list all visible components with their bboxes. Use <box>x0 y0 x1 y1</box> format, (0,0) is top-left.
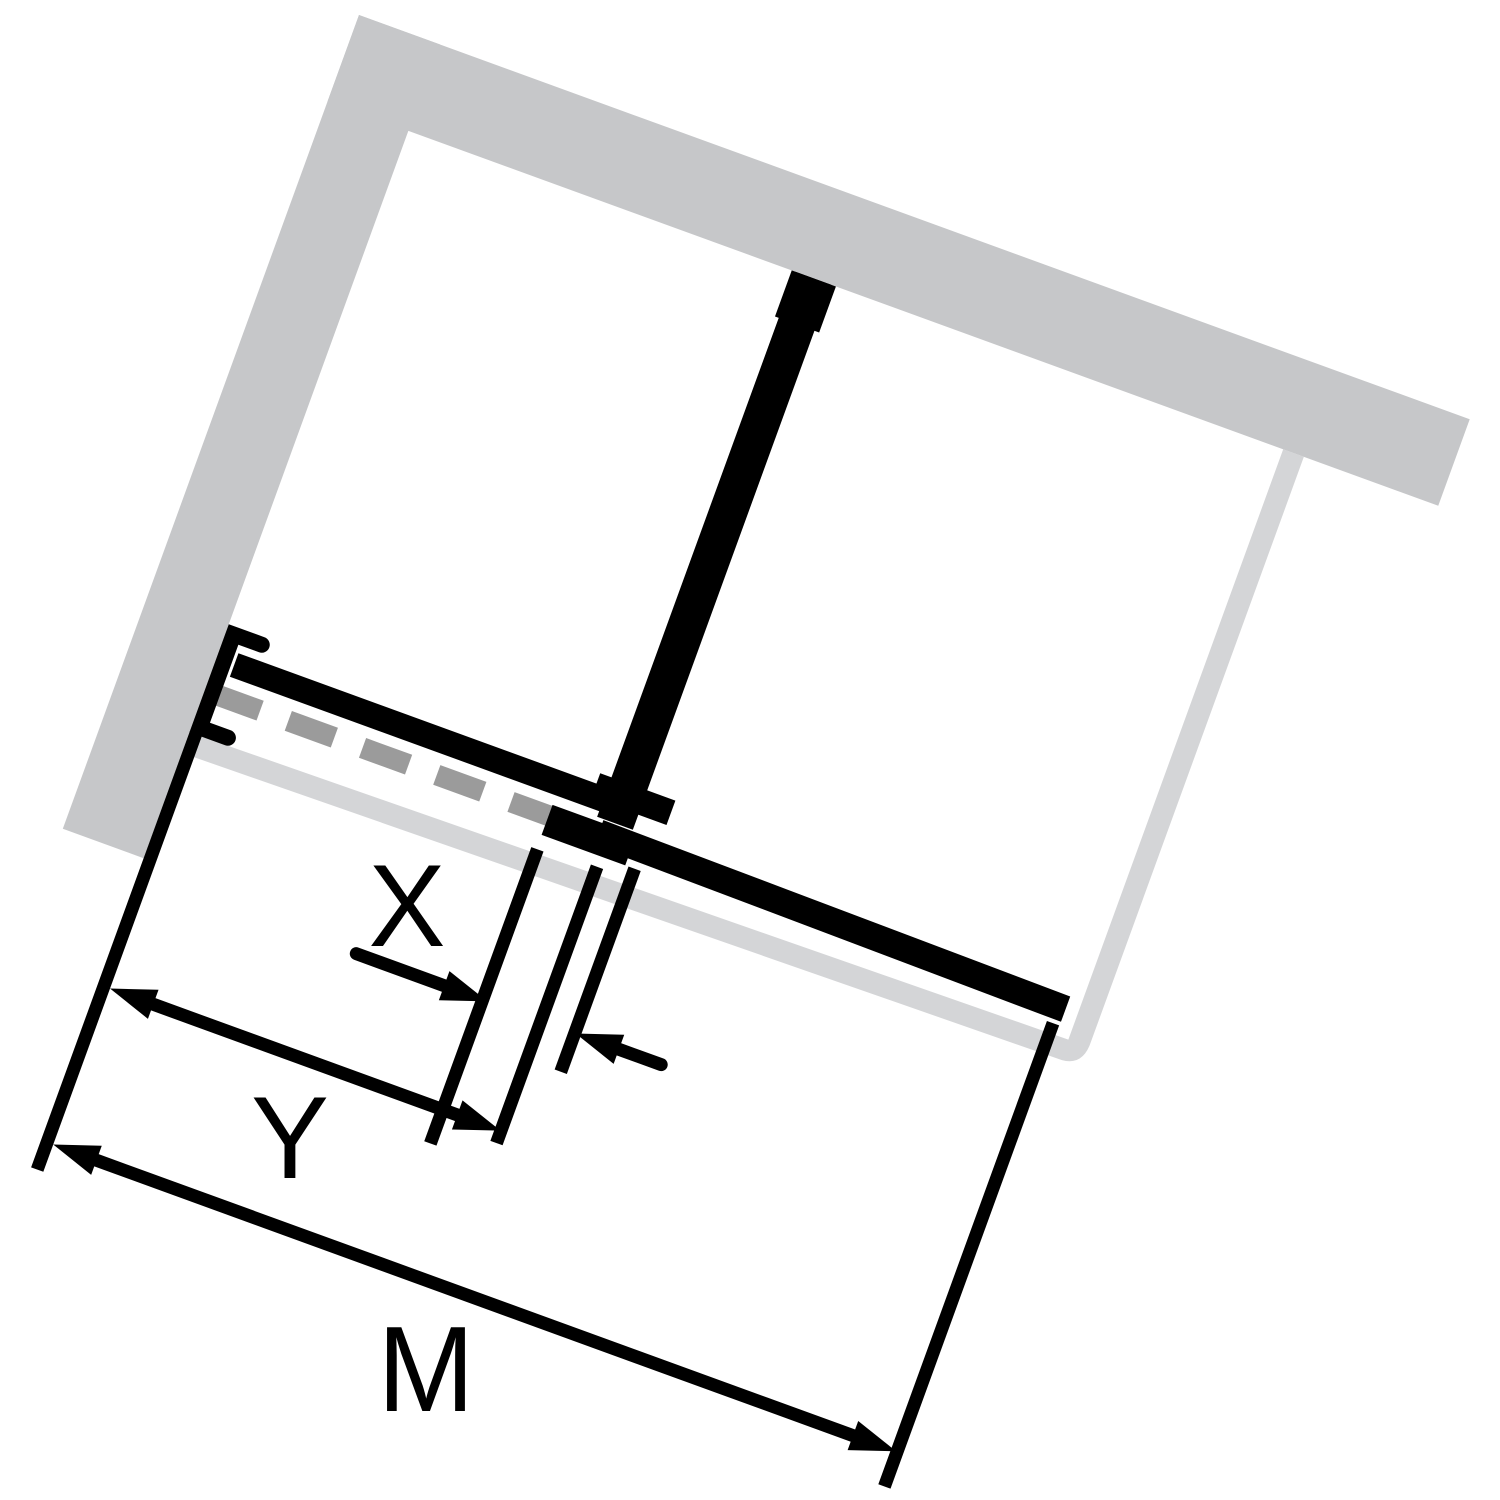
svg-text:Y: Y <box>251 1072 329 1203</box>
svg-text:X: X <box>369 840 446 971</box>
svg-text:M: M <box>378 1301 475 1437</box>
